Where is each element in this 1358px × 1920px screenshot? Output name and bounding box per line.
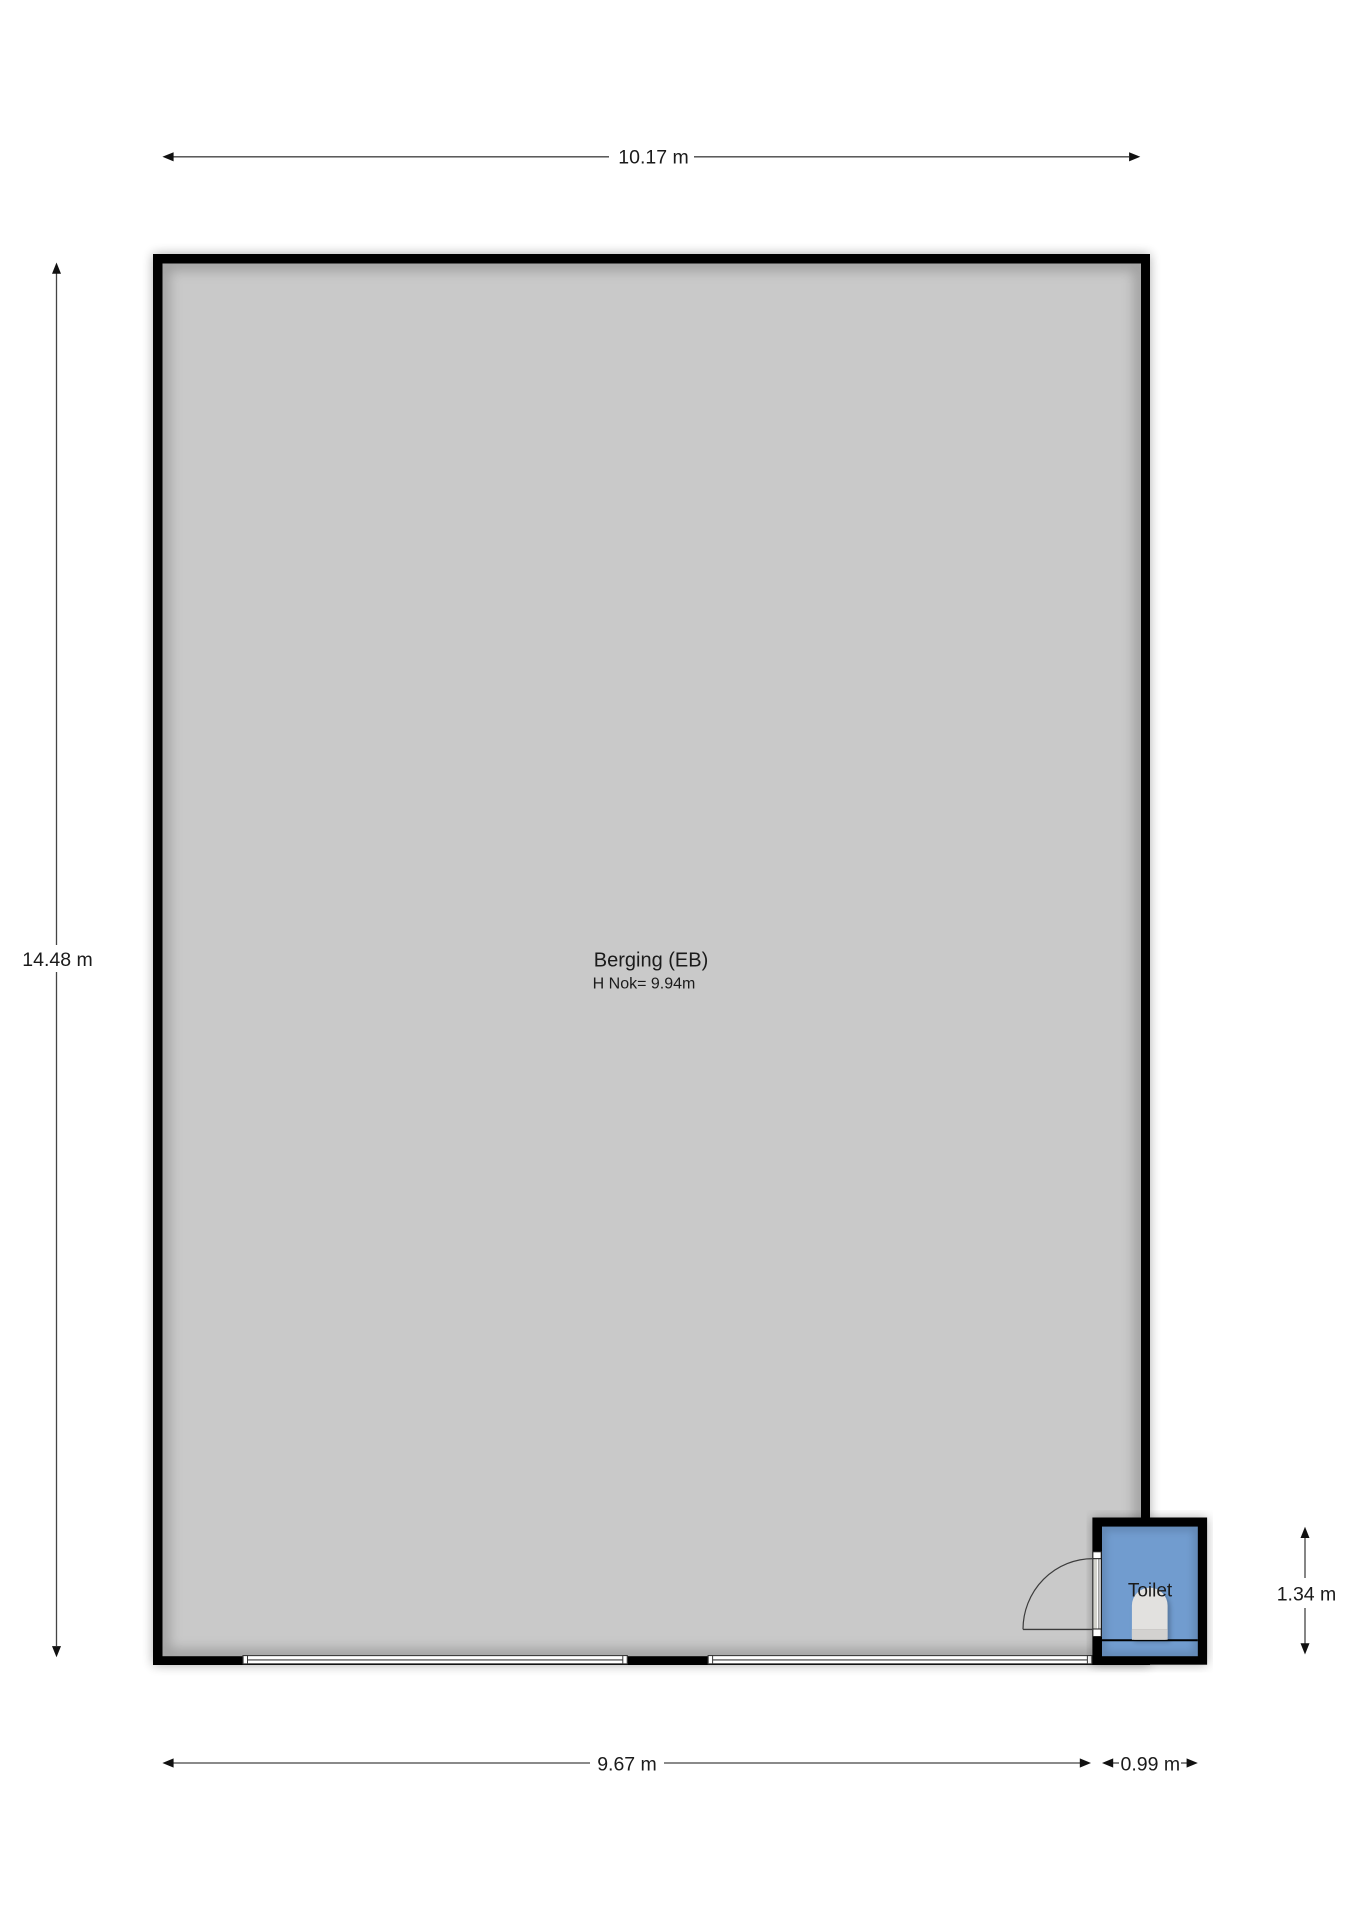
svg-text:Toilet: Toilet (1128, 1581, 1173, 1602)
svg-text:9.67 m: 9.67 m (597, 1753, 657, 1775)
svg-text:1.34 m: 1.34 m (1277, 1583, 1337, 1605)
svg-text:14.48 m: 14.48 m (22, 949, 92, 971)
svg-text:Berging (EB): Berging (EB) (594, 950, 709, 972)
svg-text:H Nok= 9.94m: H Nok= 9.94m (593, 976, 696, 993)
svg-text:0.99 m: 0.99 m (1120, 1753, 1180, 1775)
svg-text:10.17 m: 10.17 m (618, 147, 688, 169)
